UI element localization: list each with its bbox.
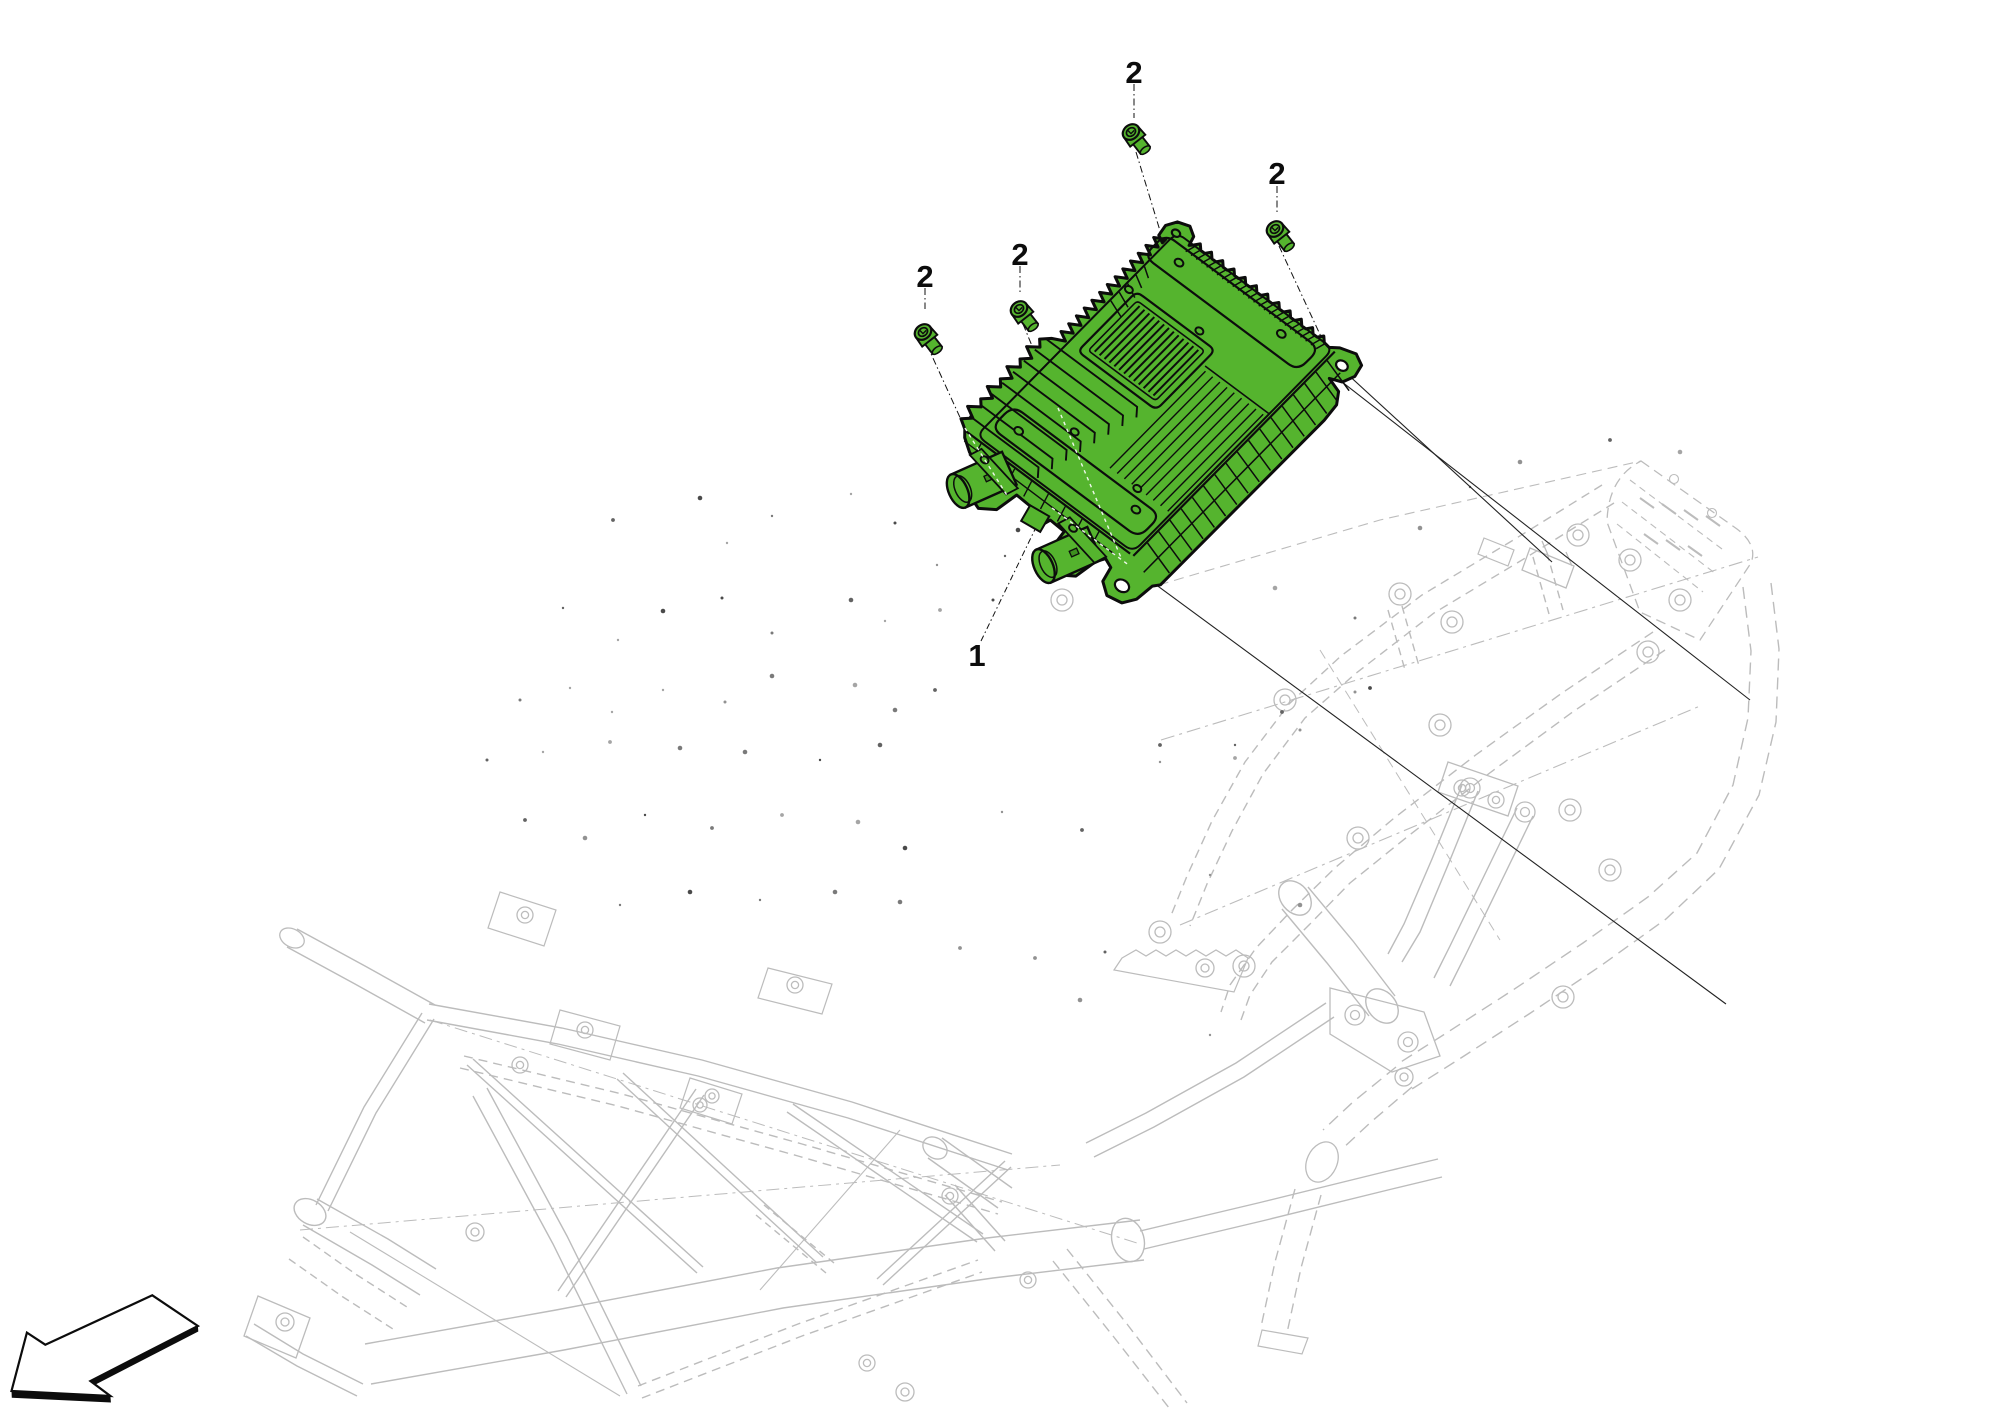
svg-text:2: 2 xyxy=(1268,156,1285,191)
svg-text:2: 2 xyxy=(1011,237,1028,272)
svg-text:1: 1 xyxy=(968,638,985,673)
svg-text:2: 2 xyxy=(1125,55,1142,90)
svg-text:2: 2 xyxy=(916,259,933,294)
